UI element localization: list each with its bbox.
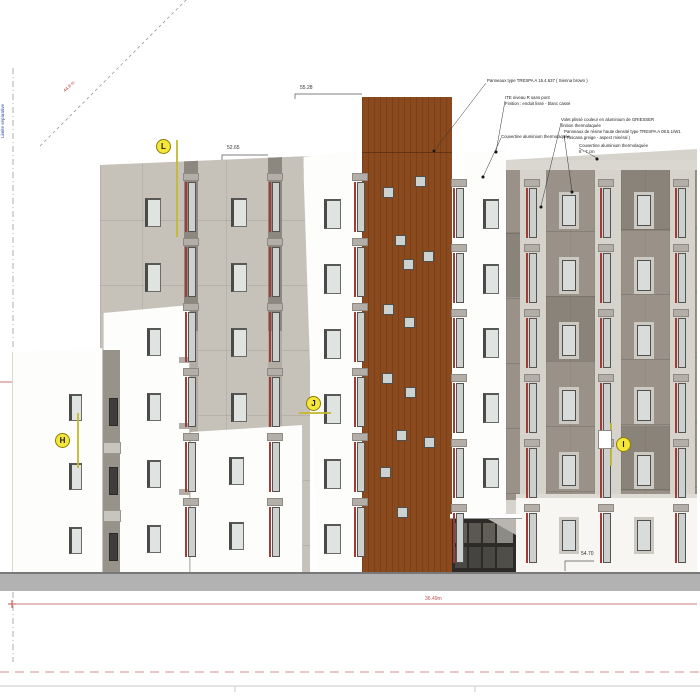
annotation-line: 6 - 7 cm [579, 149, 648, 155]
annotation: Panneaux de résine haute densité type TR… [564, 129, 681, 141]
marker-J: J [306, 396, 321, 411]
elevation-drawing: Limite séparative 44.8 m LHJIPanneaux ty… [0, 0, 700, 700]
annotation-layer: Limite séparative 44.8 m LHJIPanneaux ty… [0, 0, 700, 700]
slope-label: 44.8 m [62, 80, 75, 93]
annotation-line: Couvertine aluminium thermolaquée [501, 134, 570, 140]
marker-line-J [299, 412, 331, 414]
annotation-line: Panneaux de résine haute densité type TR… [564, 129, 681, 135]
annotation-line: Volet plissé couleur en aluminium de GRI… [561, 117, 654, 123]
dimension-label: 52.65 [227, 145, 240, 151]
marker-patch [598, 430, 612, 449]
annotation: Couvertine aluminium thermolaquée6 - 7 c… [579, 143, 648, 155]
marker-I: I [616, 437, 631, 452]
marker-H: H [55, 433, 70, 448]
marker-line-L [176, 140, 178, 237]
annotation: Panneaux type TRESPA A 15.4.637 ( Sienna… [487, 78, 588, 84]
annotation-line: Finition : enduit lissé - blanc cassé [505, 101, 570, 107]
boundary-label: Limite séparative [0, 104, 5, 138]
annotation-line: Panneaux type TRESPA A 15.4.637 ( Sienna… [487, 78, 588, 84]
dimension-label: 36.49m [425, 596, 442, 602]
dimension-label: 54.70 [581, 551, 594, 557]
annotation-line: Couvertine aluminium thermolaquée [579, 143, 648, 149]
annotation: Couvertine aluminium thermolaquée [501, 134, 570, 140]
marker-line-H [77, 413, 79, 468]
annotation-line: ( Toscana greige - aspect minéral ) [564, 135, 681, 141]
dimension-label: 55.28 [300, 85, 313, 91]
annotation-line: finition thermolaquée [561, 123, 654, 129]
annotation: ITE niveau R sans pontFinition : enduit … [505, 95, 570, 107]
marker-L: L [156, 139, 171, 154]
annotation: Volet plissé couleur en aluminium de GRI… [561, 117, 654, 129]
